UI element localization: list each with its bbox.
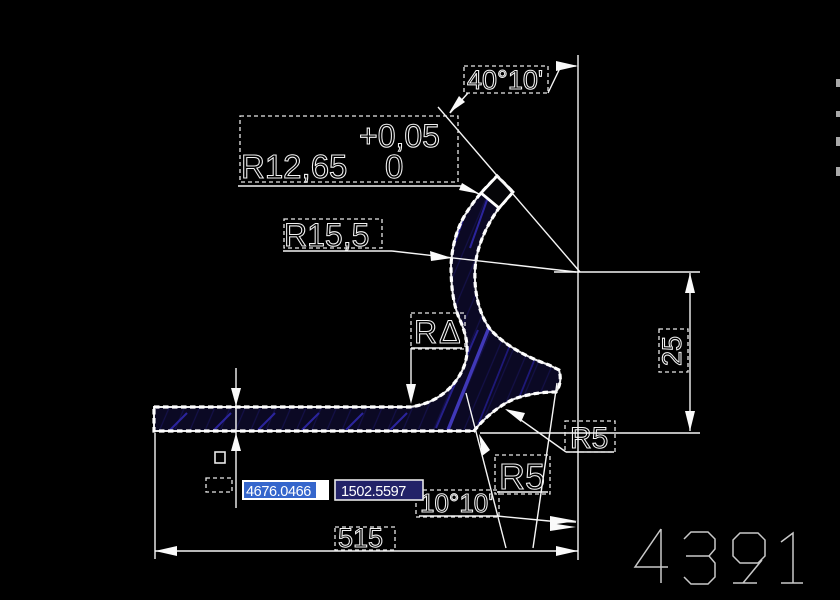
svg-text:10°10': 10°10' [420,488,493,518]
svg-text:RΔ: RΔ [414,314,460,350]
svg-text:R12,65: R12,65 [241,148,347,185]
svg-text:1502.5597: 1502.5597 [341,484,406,500]
svg-text:R15,5: R15,5 [284,217,369,253]
svg-text:40°10': 40°10' [467,65,543,95]
svg-text:R5: R5 [570,422,608,455]
svg-text:0: 0 [385,148,403,185]
svg-text:4676.0466: 4676.0466 [246,484,311,500]
svg-text:515: 515 [338,523,383,553]
svg-text:R5: R5 [499,456,545,497]
svg-text:25: 25 [657,336,687,366]
